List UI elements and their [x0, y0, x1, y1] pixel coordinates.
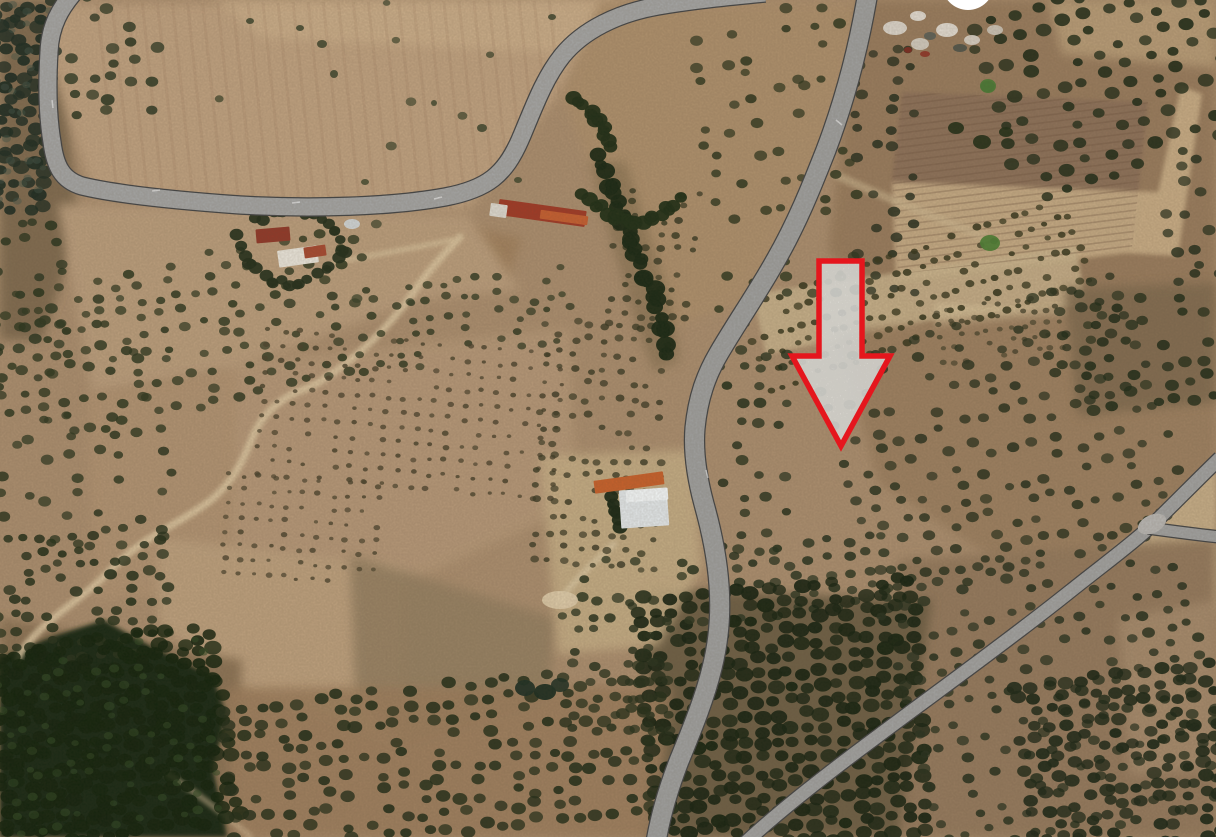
imagery-grain-overlay	[0, 0, 1216, 837]
grain-texture	[0, 0, 1216, 837]
map-viewport[interactable]	[0, 0, 1216, 837]
satellite-map-canvas[interactable]	[0, 0, 1216, 837]
